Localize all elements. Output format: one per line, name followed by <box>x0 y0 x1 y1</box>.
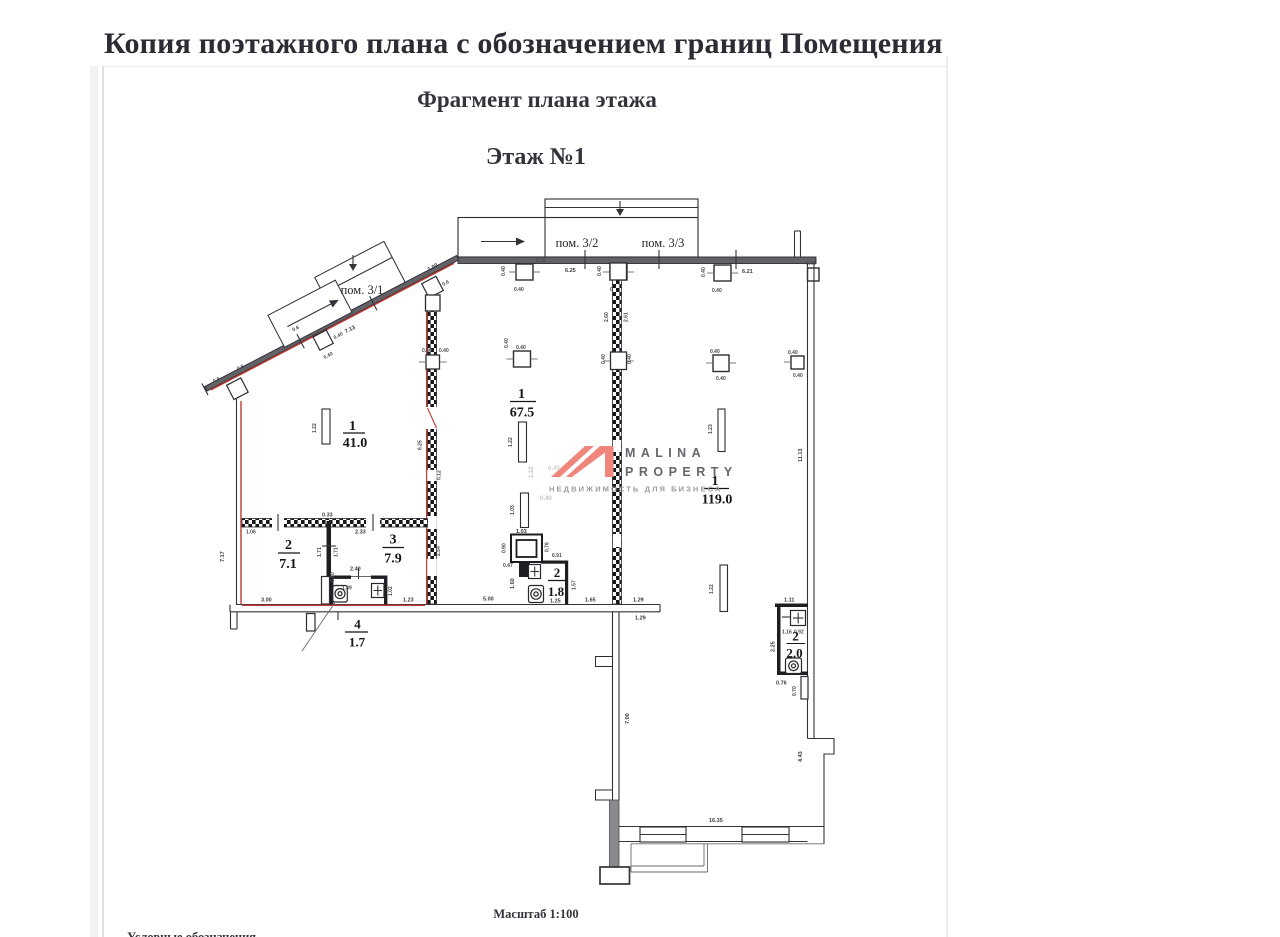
svg-text:2: 2 <box>285 538 292 553</box>
svg-text:6.25: 6.25 <box>418 440 424 450</box>
svg-text:0.90: 0.90 <box>502 543 508 553</box>
svg-text:1: 1 <box>518 387 525 402</box>
svg-text:0.76: 0.76 <box>545 542 551 552</box>
svg-text:4.43: 4.43 <box>798 751 804 762</box>
svg-text:0.70: 0.70 <box>792 686 798 696</box>
svg-text:7.00: 7.00 <box>625 713 631 724</box>
svg-text:1.03: 1.03 <box>510 505 516 515</box>
svg-text:1.22: 1.22 <box>312 423 318 433</box>
svg-text:0.40: 0.40 <box>501 266 507 276</box>
svg-text:1.7: 1.7 <box>349 635 366 650</box>
svg-text:2.54: 2.54 <box>436 546 442 556</box>
svg-text:Фрагмент плана этажа: Фрагмент плана этажа <box>417 87 657 112</box>
svg-text:67.5: 67.5 <box>510 406 535 421</box>
svg-text:3.00: 3.00 <box>261 598 272 604</box>
svg-text:1.57: 1.57 <box>572 580 578 590</box>
svg-text:2.60: 2.60 <box>604 312 610 322</box>
svg-text:6.21: 6.21 <box>742 269 753 275</box>
svg-text:1.89: 1.89 <box>342 586 352 592</box>
svg-text:6.91: 6.91 <box>552 553 562 559</box>
svg-text:7.17: 7.17 <box>220 551 226 562</box>
svg-text:1: 1 <box>349 419 356 434</box>
svg-text:7.1: 7.1 <box>279 557 297 572</box>
svg-text:1.02: 1.02 <box>388 586 394 596</box>
svg-text:7.13: 7.13 <box>344 325 356 335</box>
svg-text:пом. 3/2: пом. 3/2 <box>556 236 599 250</box>
svg-text:2.0: 2.0 <box>786 646 802 661</box>
svg-text:0.33: 0.33 <box>322 513 333 519</box>
svg-text:PROPERTY: PROPERTY <box>625 465 738 479</box>
svg-text:0.40: 0.40 <box>514 287 524 293</box>
svg-text:1.03: 1.03 <box>516 529 527 535</box>
svg-text:1.11: 1.11 <box>784 598 794 604</box>
svg-text:0.47: 0.47 <box>503 563 513 569</box>
svg-text:1.8: 1.8 <box>548 584 565 599</box>
svg-text:НЕДВИЖИМОСТЬ ДЛЯ БИЗНЕСА: НЕДВИЖИМОСТЬ ДЛЯ БИЗНЕСА <box>549 485 722 494</box>
svg-text:1.06: 1.06 <box>246 530 256 536</box>
svg-text:2: 2 <box>554 565 561 580</box>
svg-text:1.22: 1.22 <box>508 437 514 447</box>
svg-text:пом. 3/3: пом. 3/3 <box>642 236 685 250</box>
svg-text:MALINA: MALINA <box>625 446 706 460</box>
svg-text:1.60: 1.60 <box>510 578 516 589</box>
svg-text:2.33: 2.33 <box>355 530 366 536</box>
svg-text:1.29: 1.29 <box>635 616 646 622</box>
svg-text:1.16: 1.16 <box>782 630 792 636</box>
svg-text:1.65: 1.65 <box>585 598 596 604</box>
svg-text:0.40: 0.40 <box>333 331 345 341</box>
svg-text:0.40: 0.40 <box>504 338 510 348</box>
svg-text:2: 2 <box>792 629 799 644</box>
svg-text:Этаж №1: Этаж №1 <box>486 144 586 170</box>
svg-text:пом. 3/1: пом. 3/1 <box>341 283 384 297</box>
svg-text:0.40: 0.40 <box>516 345 526 351</box>
svg-text:119.0: 119.0 <box>702 493 733 508</box>
svg-text:Масштаб 1:100: Масштаб 1:100 <box>493 907 578 921</box>
svg-text:1.71: 1.71 <box>317 547 323 557</box>
svg-text:0.6: 0.6 <box>441 279 450 288</box>
svg-text:0.80: 0.80 <box>330 572 336 582</box>
svg-text:0.76: 0.76 <box>776 681 787 687</box>
svg-text:0.29: 0.29 <box>536 258 546 264</box>
svg-text:5.00: 5.00 <box>483 597 494 603</box>
svg-text:16.35: 16.35 <box>709 818 723 824</box>
svg-text:6.25: 6.25 <box>565 268 576 274</box>
svg-text:0.12: 0.12 <box>437 470 443 480</box>
svg-text:0.40: 0.40 <box>439 348 449 354</box>
svg-text:0.40: 0.40 <box>701 267 707 277</box>
svg-text:2.61: 2.61 <box>624 312 630 322</box>
svg-text:2.40: 2.40 <box>350 567 361 573</box>
svg-text:7.9: 7.9 <box>384 552 402 567</box>
svg-text:2.25: 2.25 <box>771 641 777 652</box>
svg-text:0.40: 0.40 <box>793 373 803 379</box>
svg-text:0.40: 0.40 <box>601 354 607 364</box>
svg-text:0.40: 0.40 <box>597 266 603 276</box>
svg-text:0.40: 0.40 <box>627 354 633 364</box>
svg-text:1.22: 1.22 <box>709 584 715 594</box>
svg-text:0.40: 0.40 <box>788 350 798 356</box>
svg-text:0.40: 0.40 <box>716 376 726 382</box>
svg-text:0.40: 0.40 <box>712 288 722 294</box>
svg-text:1.29: 1.29 <box>633 598 644 604</box>
svg-text:1.22: 1.22 <box>529 466 535 478</box>
svg-text:0.40: 0.40 <box>710 349 720 355</box>
svg-text:4: 4 <box>354 617 361 632</box>
svg-text:0.40: 0.40 <box>422 348 432 354</box>
svg-text:0.40: 0.40 <box>540 496 552 502</box>
svg-text:Условные обозначения: Условные обозначения <box>127 930 256 937</box>
svg-text:1.71: 1.71 <box>334 547 340 557</box>
svg-text:1.25: 1.25 <box>550 599 561 605</box>
svg-text:3: 3 <box>390 533 397 548</box>
svg-text:1.23: 1.23 <box>708 424 714 434</box>
svg-text:0.40: 0.40 <box>323 351 335 361</box>
svg-text:11.13: 11.13 <box>798 449 804 462</box>
svg-text:1.23: 1.23 <box>403 598 414 604</box>
svg-text:41.0: 41.0 <box>343 436 368 451</box>
